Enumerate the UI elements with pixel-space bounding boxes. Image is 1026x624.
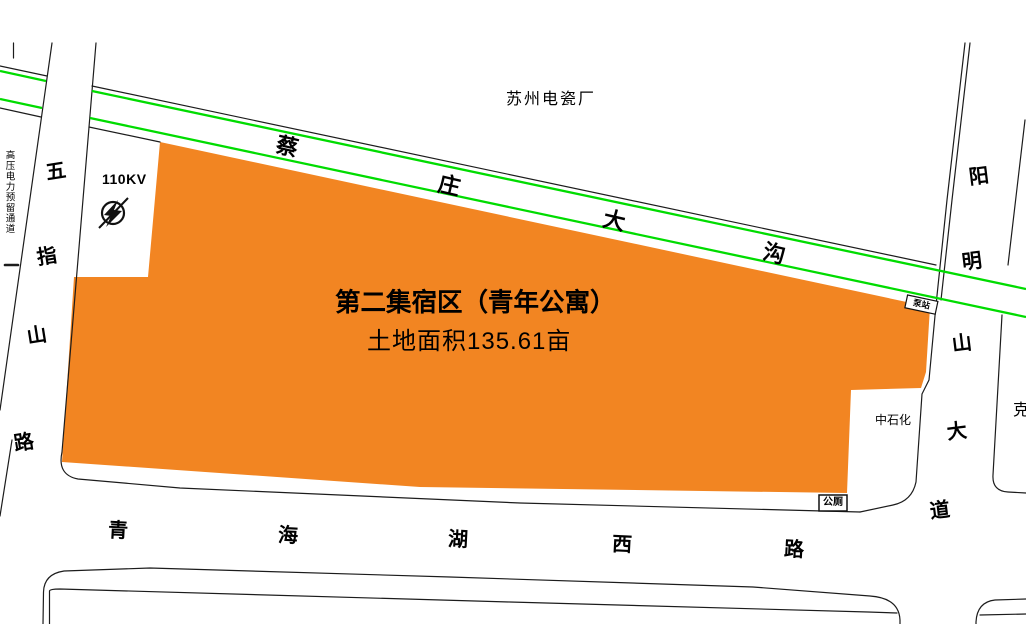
- public-toilet-label: 公厕: [819, 495, 847, 511]
- road-qinghaihu-char: 路: [783, 539, 804, 560]
- east-block-north-edge: [1008, 120, 1025, 265]
- high-voltage-icon: [99, 198, 128, 228]
- road-qinghaihu-char: 青: [107, 520, 128, 541]
- parcel-area-label: 土地面积135.61亩: [367, 330, 571, 354]
- road-wuzhishan-char: 五: [45, 161, 68, 184]
- road-yangmingshan-char: 明: [961, 251, 983, 273]
- southeast-block-inner-boundary: [980, 614, 1026, 615]
- parcel-polygon: [62, 142, 930, 493]
- road-yangmingshan-char: 阳: [968, 166, 990, 188]
- road-yangmingshan-char: 道: [929, 500, 951, 522]
- road-wuzhishan-char: 指: [36, 246, 59, 269]
- power-corridor-label: 高压电力预留通道: [4, 150, 14, 240]
- south-block-outer-boundary: [43, 568, 900, 624]
- south-block-inner-boundary: [50, 589, 898, 624]
- parcel-title: 第二集宿区（青年公寓）: [335, 291, 616, 317]
- southeast-block-outer-boundary: [976, 599, 1026, 624]
- west-block-edge-line: [0, 440, 12, 516]
- ditch-south-line: [0, 108, 160, 142]
- road-qinghaihu-char: 湖: [447, 529, 468, 550]
- road-qinghaihu-char: 西: [611, 534, 632, 555]
- east-clipped-label: 克: [1013, 403, 1026, 419]
- road-wuzhishan-char: 路: [13, 432, 36, 455]
- sinopec-label: 中石化: [875, 414, 911, 426]
- road-wuzhishan-char: 山: [26, 325, 49, 348]
- road-qinghaihu-char: 海: [277, 525, 298, 546]
- road-yangmingshan-char: 山: [951, 333, 973, 355]
- voltage-label: 110KV: [102, 172, 147, 186]
- land-use-map: 苏州电瓷厂 高压电力预留通道 110KV 第二集宿区（青年公寓） 土地面积135…: [0, 0, 1026, 624]
- factory-label: 苏州电瓷厂: [506, 92, 596, 108]
- road-yangmingshan-char: 大: [946, 421, 968, 443]
